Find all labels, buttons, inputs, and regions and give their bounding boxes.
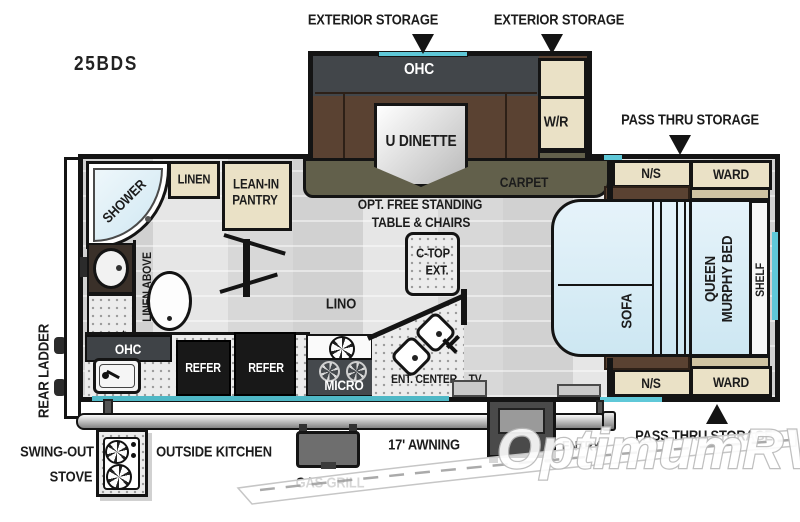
- kitchen-ohc-label: OHC: [115, 342, 141, 356]
- bed-fold-line: [652, 202, 654, 354]
- bed-label-line2: MURPHY BED: [719, 236, 736, 323]
- swing-out-label-line1: SWING-OUT: [20, 445, 94, 460]
- entry-label: ENTRY: [562, 439, 600, 453]
- arrow-down-icon: [412, 34, 434, 54]
- window-strip: [600, 397, 662, 402]
- bath-vanity: [87, 243, 134, 294]
- exterior-storage-label-1: EXTERIOR STORAGE: [308, 13, 438, 28]
- stove-knob-icon: [131, 442, 136, 447]
- exterior-storage-label-2: EXTERIOR STORAGE: [494, 13, 624, 28]
- arrow-down-icon: [669, 135, 691, 155]
- grill-handle: [321, 462, 336, 469]
- shelf-label: SHELF: [754, 263, 766, 297]
- bed-label-line1: QUEEN: [702, 236, 719, 323]
- toilet: [147, 271, 192, 331]
- slideout-ohc-label: OHC: [404, 62, 434, 78]
- step-leg: [489, 457, 498, 463]
- window-strip: [604, 155, 622, 160]
- ctop-label-line2: EXT.: [426, 264, 449, 277]
- rear-ladder-label: REAR LADDER: [37, 324, 52, 418]
- step: [498, 408, 545, 434]
- sink-drain-icon: [436, 331, 442, 337]
- refer1-label: REFER: [185, 362, 221, 375]
- bed-fold-line: [684, 202, 686, 354]
- wr-label: W/R: [544, 115, 569, 130]
- stove-knob-icon: [131, 453, 136, 458]
- bed-fold-line: [676, 202, 678, 354]
- bed-fold-line: [660, 202, 662, 354]
- arrow-up-icon: [706, 404, 728, 424]
- entry-steps: [487, 399, 556, 458]
- outside-kitchen-label: OUTSIDE KITCHEN: [156, 445, 272, 460]
- arrow-down-icon: [541, 34, 563, 54]
- awning-label: 17' AWNING: [388, 438, 460, 453]
- pantry-label-line2: PANTRY: [232, 193, 277, 207]
- awning-end-cap: [602, 411, 616, 431]
- refer2-label: REFER: [248, 362, 284, 375]
- ent-center-label: ENT. CENTER: [391, 373, 457, 385]
- bath-wall: [243, 239, 250, 297]
- toilet-flush-icon: [167, 316, 172, 321]
- bath-sink: [93, 248, 129, 289]
- cushion-seam: [315, 92, 537, 94]
- gas-grill-label: GAS GRILL: [296, 476, 365, 491]
- cushion-seam: [505, 92, 507, 163]
- bath-sink-drain-icon: [116, 265, 122, 271]
- awning-window-strip: [92, 396, 449, 401]
- entry-threshold: [557, 384, 601, 397]
- opt-table-label-line1: OPT. FREE STANDING: [358, 197, 482, 211]
- model-label: 25BDS: [74, 54, 138, 74]
- ns-bottom-label: N/S: [641, 376, 661, 390]
- bedroom-wall: [607, 158, 613, 200]
- sink-drain-icon: [412, 355, 418, 361]
- linen-above-wall: [133, 240, 136, 334]
- bed-panel-edge: [689, 202, 692, 354]
- burner-icon: [105, 440, 129, 464]
- linen-label: LINEN: [178, 173, 211, 186]
- pantry-label-line1: LEAN-IN: [233, 177, 279, 191]
- pass-thru-bottom-label: PASS THRU STORAGE: [635, 429, 773, 444]
- ward-bottom-label: WARD: [713, 375, 749, 389]
- wr-divider: [538, 96, 587, 99]
- entry-threshold: [452, 380, 487, 397]
- ward-base-bottom: [690, 356, 770, 368]
- ctop-label-line1: C-TOP: [416, 247, 450, 260]
- kitchen-sink: [93, 358, 141, 394]
- opt-table-label-line2: TABLE & CHAIRS: [372, 215, 470, 229]
- u-dinette-label: U DINETTE: [385, 134, 456, 150]
- carpet-label: CARPET: [500, 175, 548, 189]
- tv-panel: [461, 289, 467, 325]
- sofa-label: SOFA: [620, 293, 635, 328]
- step-leg: [545, 457, 554, 463]
- shower-drain-icon: [145, 216, 151, 222]
- lino-label: LINO: [326, 297, 356, 312]
- ns-top-label: N/S: [641, 166, 661, 180]
- bedroom-wall: [607, 358, 613, 398]
- cushion-seam: [343, 92, 345, 163]
- window-strip: [772, 232, 778, 320]
- wr-cabinet: [538, 58, 587, 151]
- ward-top-label: WARD: [713, 167, 749, 181]
- burner-icon: [106, 464, 132, 490]
- pass-thru-top-label: PASS THRU STORAGE: [621, 113, 759, 128]
- micro-label: MICRO: [324, 378, 363, 392]
- swing-out-label-line2: STOVE: [50, 470, 93, 485]
- sofa-seam: [558, 284, 653, 286]
- queen-murphy-bed-label: QUEEN MURPHY BED: [702, 236, 737, 323]
- floorplan-25bds: 25BDS REAR LADDER OHC U DINETTE W/R CARP…: [0, 0, 800, 522]
